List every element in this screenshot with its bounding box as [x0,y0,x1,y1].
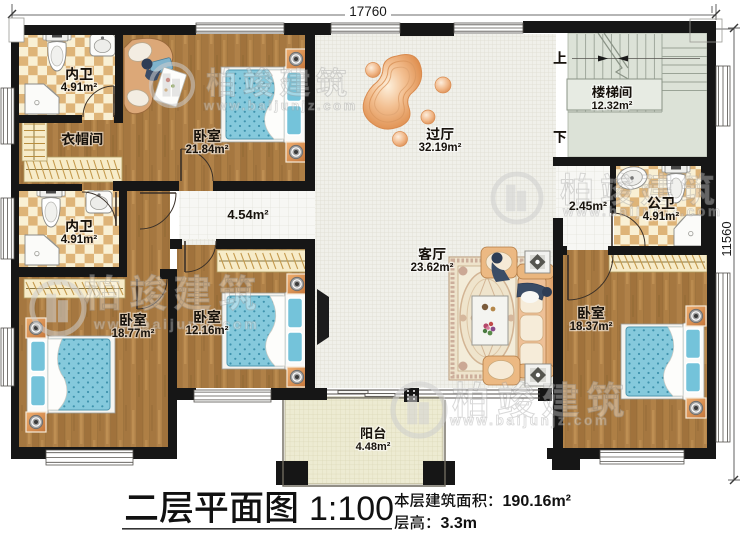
svg-text:18.37m²: 18.37m² [570,318,613,334]
svg-text:4.91m²: 4.91m² [61,79,98,95]
svg-text:本层建筑面积：190.16m²: 本层建筑面积：190.16m² [394,487,571,511]
svg-text:4.48m²: 4.48m² [356,438,391,454]
svg-text:www.baijunjz.com: www.baijunjz.com [449,413,610,428]
svg-text:下: 下 [553,127,567,147]
svg-text:32.19m²: 32.19m² [419,139,462,155]
svg-text:11560: 11560 [719,221,734,256]
svg-text:2.45m²: 2.45m² [569,199,607,213]
svg-text:层高：3.3m: 层高：3.3m [394,509,477,533]
svg-text:21.84m²: 21.84m² [186,141,229,157]
svg-text:4.54m²: 4.54m² [227,207,269,222]
svg-text:23.62m²: 23.62m² [411,259,454,275]
svg-text:17760: 17760 [349,4,387,19]
svg-text:18.77m²: 18.77m² [112,325,155,341]
svg-text:柏竣建筑: 柏竣建筑 [206,58,352,103]
svg-text:上: 上 [553,48,567,68]
svg-text:二层平面图: 二层平面图 [124,480,299,531]
svg-text:12.16m²: 12.16m² [186,322,229,338]
svg-text:www.baijunjz.com: www.baijunjz.com [203,98,358,113]
svg-text:12.32m²: 12.32m² [592,97,633,113]
svg-text:衣帽间: 衣帽间 [61,129,103,149]
svg-text:4.91m²: 4.91m² [643,208,680,224]
svg-text:4.91m²: 4.91m² [61,231,98,247]
svg-text:1:100: 1:100 [309,490,394,528]
svg-text:柏竣建筑: 柏竣建筑 [84,263,263,318]
